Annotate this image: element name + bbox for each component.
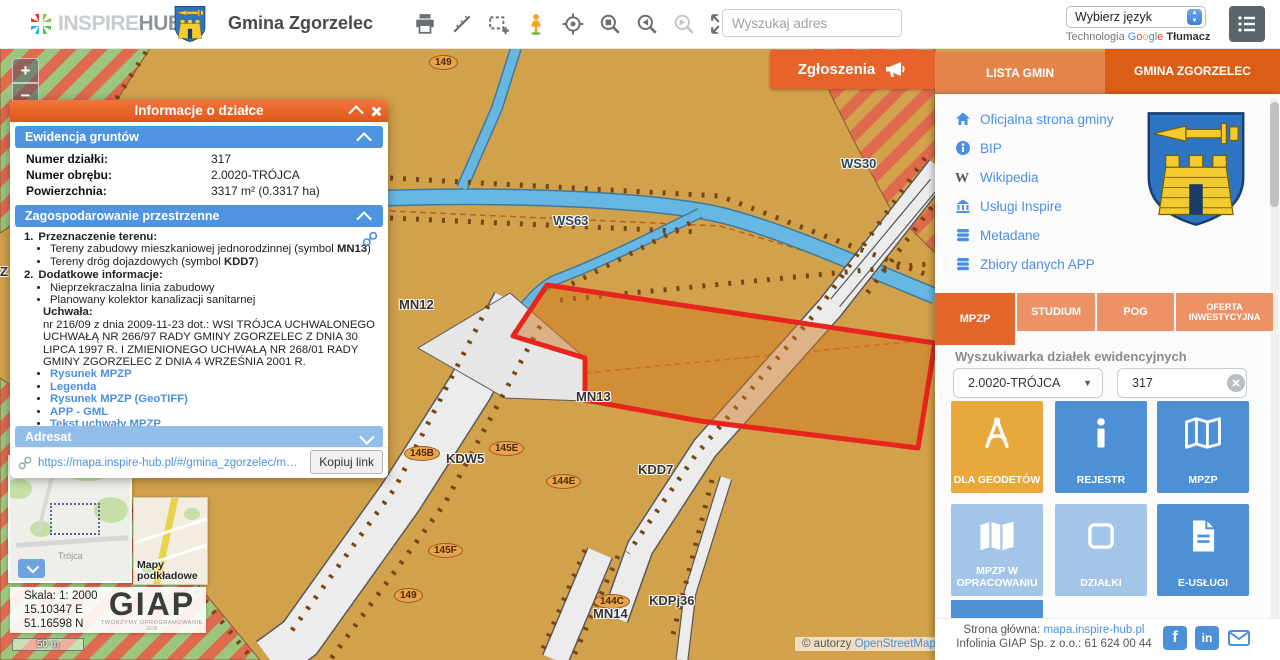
measure-area-icon[interactable] <box>486 11 512 37</box>
row-value: 3317 m² (0.3317 ha) <box>211 184 320 199</box>
link-item: Legenda <box>50 381 378 393</box>
popup-header[interactable]: Informacje o działce <box>10 100 388 122</box>
previous-extent-icon[interactable] <box>634 11 660 37</box>
tile-mpzp-w-opracowaniu[interactable]: MPZP W OPRACOWANIU <box>951 504 1043 596</box>
header: INSPIREHUB Gmina Zgorzelec <box>0 0 1280 49</box>
item-number: 2. <box>24 269 33 281</box>
sidebar-link-bip[interactable]: BIP <box>955 137 1002 159</box>
precinct-number-row: Numer obrębu: 2.0020-TRÓJCA <box>10 167 388 183</box>
map-solid-icon <box>975 516 1019 556</box>
section-adresat-title: Adresat <box>25 430 72 444</box>
map-label-zone: MN13 <box>576 389 611 404</box>
home-page-line: Strona główna: mapa.inspire-hub.pl <box>953 623 1155 637</box>
header-coat-of-arms <box>174 4 206 44</box>
map-label-zone: WS63 <box>553 213 588 228</box>
basemap-label: Mapy podkładowe <box>137 560 207 582</box>
attribution-prefix: © autorzy <box>802 638 855 650</box>
sidebar-link-app-datasets[interactable]: Zbiory danych APP <box>955 253 1095 275</box>
google-translate-attribution: Technologia Google Tłumacz <box>1066 31 1210 43</box>
locate-icon[interactable] <box>560 11 586 37</box>
link-icon <box>18 456 32 470</box>
map-toolbar <box>412 11 734 37</box>
precinct-select-value: 2.0020-TRÓJCA <box>968 376 1060 390</box>
mpzp-drawing-link[interactable]: Rysunek MPZP <box>50 368 132 380</box>
measure-distance-icon[interactable] <box>449 11 475 37</box>
print-icon[interactable] <box>412 11 438 37</box>
share-url[interactable]: https://mapa.inspire-hub.pl/#/gmina_zgor… <box>38 457 303 469</box>
longitude-value: 15.10347 E <box>24 603 98 617</box>
basemap-switcher[interactable]: Mapy podkładowe <box>133 497 208 585</box>
tab-gmina-zgorzelec[interactable]: GMINA ZGORZELEC <box>1105 48 1280 94</box>
svg-text:W: W <box>955 171 969 185</box>
overview-green-area <box>8 479 32 499</box>
document-icon <box>1183 516 1223 556</box>
legend-link[interactable]: Legenda <box>50 381 96 393</box>
planning-item-1: 1. Przeznaczenie terenu: <box>24 231 378 243</box>
select-stepper-icon: ▲▼ <box>1187 9 1202 25</box>
section-ewidencja-title: Ewidencja gruntów <box>25 130 139 144</box>
sidebar-link-wikipedia[interactable]: W Wikipedia <box>955 166 1039 188</box>
chevron-up-icon <box>356 132 372 148</box>
overview-place-label: Trójca <box>58 551 83 561</box>
overview-collapse-button[interactable] <box>18 559 45 578</box>
precinct-select[interactable]: 2.0020-TRÓJCA ▼ <box>953 368 1103 398</box>
share-link-icon[interactable] <box>362 231 378 247</box>
popup-collapse-icon[interactable] <box>348 105 364 121</box>
osm-link[interactable]: OpenStreetMap <box>855 638 936 650</box>
overview-extent-rect[interactable] <box>50 503 100 535</box>
database-icon <box>955 227 971 243</box>
basemap-thumb-green <box>184 508 200 520</box>
map-label-badge: 144E <box>546 474 581 489</box>
tile-partial[interactable] <box>951 600 1043 618</box>
language-select-value: Wybierz język <box>1075 10 1152 24</box>
row-label: Numer działki: <box>26 152 211 167</box>
parcel-number-row: Numer działki: 317 <box>10 151 388 167</box>
parcel-outline-icon <box>1081 516 1121 556</box>
info-circle-icon <box>955 140 971 156</box>
map-label-zone: KDW5 <box>446 451 484 466</box>
wikipedia-icon: W <box>955 169 971 185</box>
giap-logo-text: GIAP <box>98 588 206 620</box>
page-title: Gmina Zgorzelec <box>228 13 373 34</box>
scale-bar: 50 m <box>12 638 84 651</box>
giap-logo: GIAP TWORZYMY OPROGRAMOWANIE GIS <box>98 588 206 632</box>
section-ewidencja-header[interactable]: Ewidencja gruntów <box>15 126 383 148</box>
linkedin-icon[interactable]: in <box>1195 626 1219 650</box>
bank-icon <box>955 198 971 214</box>
sidebar-link-official-site[interactable]: Oficjalna strona gminy <box>955 108 1114 130</box>
item-title: Przeznaczenie terenu: <box>38 231 157 243</box>
info-icon <box>1081 413 1121 453</box>
chevron-up-icon <box>356 211 372 227</box>
map-label-badge: 149 <box>429 55 458 70</box>
map-label-zone: KDPj36 <box>649 593 695 608</box>
tab-pog[interactable]: POG <box>1097 293 1174 331</box>
giap-tagline: TWORZYMY OPROGRAMOWANIE GIS <box>98 620 206 632</box>
app-gml-link[interactable]: APP - GML <box>50 406 108 418</box>
tab-studium[interactable]: STUDIUM <box>1017 293 1095 331</box>
megaphone-icon <box>885 61 907 79</box>
item-number: 1. <box>24 231 33 243</box>
row-label: Numer obrębu: <box>26 168 211 183</box>
street-view-icon[interactable] <box>523 11 549 37</box>
popup-close-icon[interactable] <box>370 106 381 117</box>
parcel-search-title: Wyszukiwarka działek ewidencyjnych <box>955 349 1187 364</box>
address-search-input[interactable] <box>722 9 902 37</box>
tile-dla-geodetow[interactable]: DLA GEODETÓW <box>951 401 1043 493</box>
section-planning-header[interactable]: Zagospodarowanie przestrzenne <box>15 205 383 227</box>
reports-button[interactable]: Zgłoszenia <box>770 50 935 89</box>
planning-details: 1. Przeznaczenie terenu: Tereny zabudowy… <box>10 227 388 431</box>
map-label-zone: WS30 <box>841 156 876 171</box>
app: 149 WS30 WS63 MN12 MN13 KDW5 145B 145E 1… <box>0 0 1280 660</box>
reports-button-label: Zgłoszenia <box>798 61 876 78</box>
tile-dzialki[interactable]: DZIAŁKI <box>1055 504 1147 596</box>
home-page-link[interactable]: mapa.inspire-hub.pl <box>1043 624 1144 636</box>
planning-bullet: Nieprzekraczalna linia zabudowy <box>50 282 378 294</box>
tab-mpzp[interactable]: MPZP <box>935 293 1015 345</box>
link-item: APP - GML <box>50 406 378 418</box>
planning-bullet: Tereny zabudowy mieszkaniowej jednorodzi… <box>50 243 378 255</box>
clear-input-icon[interactable] <box>1227 374 1245 392</box>
facebook-icon[interactable]: f <box>1163 626 1187 650</box>
resolution-text: nr 216/09 z dnia 2009-11-23 dot.: WSI TR… <box>43 319 378 369</box>
map-label-zone: KDD7 <box>638 462 673 477</box>
legend-icon[interactable] <box>1229 6 1265 42</box>
sidebar-scrollbar-thumb[interactable] <box>1270 102 1279 207</box>
chevron-down-icon: ▼ <box>1083 378 1092 388</box>
map-label-badge: 145F <box>428 543 463 558</box>
tab-oferta-inwestycyjna[interactable]: OFERTA INWESTYCYJNA <box>1176 293 1273 331</box>
zoom-extent-icon[interactable] <box>597 11 623 37</box>
database-icon <box>955 256 971 272</box>
map-label-badge: 149 <box>394 588 423 603</box>
map-attribution: © autorzy OpenStreetMap <box>795 637 943 651</box>
coat-of-arms <box>1140 110 1252 228</box>
tab-lista-gmin[interactable]: LISTA GMIN <box>935 52 1105 94</box>
row-value: 317 <box>211 152 231 167</box>
item-title: Dodatkowe informacje: <box>38 269 162 281</box>
language-select[interactable]: Wybierz język ▲▼ <box>1066 6 1206 28</box>
infoline: Infolinia GIAP Sp. z o.o.: 61 624 00 44 <box>953 637 1155 651</box>
parcel-info-popup: Informacje o działce Ewidencja gruntów N… <box>10 100 388 478</box>
map-label-zone: MN12 <box>399 297 434 312</box>
sidebar-link-metadata[interactable]: Metadane <box>955 224 1040 246</box>
sidebar-footer: Strona główna: mapa.inspire-hub.pl Infol… <box>935 618 1280 660</box>
inspirehub-logo-icon <box>28 11 54 37</box>
planning-bullet: Planowany kolektor kanalizacji sanitarne… <box>50 294 378 306</box>
geotiff-link[interactable]: Rysunek MPZP (GeoTIFF) <box>50 393 188 405</box>
sidebar: LISTA GMIN GMINA ZGORZELEC Oficjalna str… <box>935 48 1280 660</box>
section-adresat-header[interactable]: Adresat <box>15 426 383 448</box>
row-value: 2.0020-TRÓJCA <box>211 168 300 183</box>
map-label-badge: 145E <box>489 441 524 456</box>
scale-panel: Skala: 1: 2000 15.10347 E 51.16598 N GIA… <box>10 587 206 633</box>
map-label-zone: Z <box>0 264 8 279</box>
planning-bullet: Tereny dróg dojazdowych (symbol KDD7) <box>50 256 378 268</box>
latitude-value: 51.16598 N <box>24 617 98 631</box>
compass-icon <box>977 413 1017 453</box>
next-extent-icon[interactable] <box>671 11 697 37</box>
area-row: Powierzchnia: 3317 m² (0.3317 ha) <box>10 183 388 199</box>
chevron-down-icon <box>359 429 375 445</box>
tile-e-uslugi[interactable]: E-USŁUGI <box>1157 504 1249 596</box>
sidebar-link-inspire-services[interactable]: Usługi Inspire <box>955 195 1062 217</box>
row-label: Powierzchnia: <box>26 184 211 199</box>
resolution-label: Uchwała: <box>43 306 93 318</box>
sidebar-panel: Oficjalna strona gminy BIP W Wikipedia U… <box>935 94 1280 660</box>
link-item: Rysunek MPZP (GeoTIFF) <box>50 393 378 405</box>
map-icon <box>1181 413 1225 453</box>
tile-mpzp[interactable]: MPZP <box>1157 401 1249 493</box>
copy-link-button[interactable]: Kopiuj link <box>310 450 383 474</box>
popup-title: Informacje o działce <box>134 103 263 118</box>
link-item: Rysunek MPZP <box>50 368 378 380</box>
tile-rejestr[interactable]: REJESTR <box>1055 401 1147 493</box>
email-icon[interactable] <box>1227 626 1251 650</box>
home-icon <box>955 111 971 127</box>
zoom-in-button[interactable]: + <box>12 58 39 83</box>
map-label-badge: 145B <box>404 446 440 461</box>
planning-item-2: 2. Dodatkowe informacje: <box>24 269 378 281</box>
section-planning-title: Zagospodarowanie przestrzenne <box>25 209 219 223</box>
scale-value: Skala: 1: 2000 <box>24 589 98 603</box>
inspirehub-logo-text: INSPIREHUB <box>58 12 183 36</box>
overview-road <box>16 535 128 548</box>
popup-share-footer: https://mapa.inspire-hub.pl/#/gmina_zgor… <box>10 447 388 478</box>
map-label-zone: MN14 <box>593 606 628 621</box>
